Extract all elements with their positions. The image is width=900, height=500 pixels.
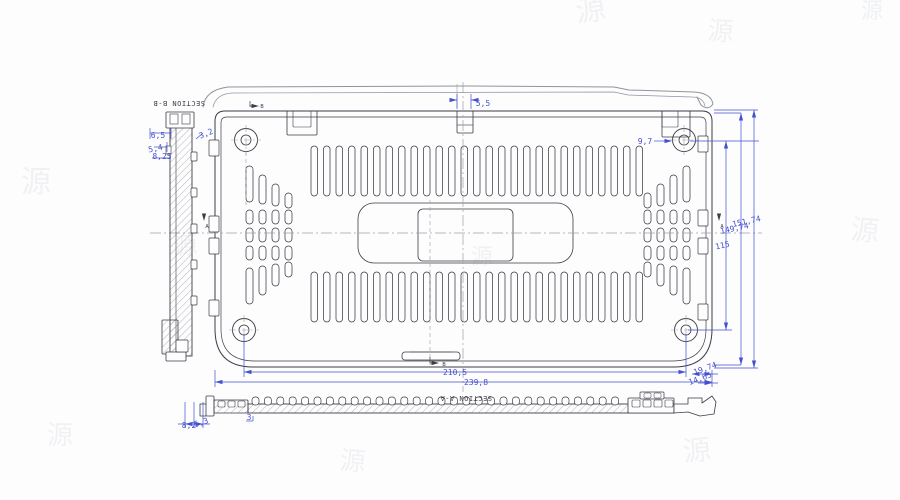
- section-label: SECTION B-B: [153, 99, 205, 107]
- dimension-label: 3,2: [198, 127, 215, 141]
- technical-drawing: 源源源源源源源源源源5,59,73,26,55,48,25151,74149,7…: [0, 0, 900, 500]
- watermark-glyph: 源: [573, 0, 608, 30]
- dimension-label: 115: [714, 240, 730, 252]
- dimension-label: 5,5: [476, 99, 491, 108]
- watermark-glyph: 源: [47, 421, 73, 451]
- dimension-layer: 5,59,73,26,55,48,25151,74149,74115210,52…: [147, 94, 761, 430]
- dimension-label: 239,8: [464, 378, 488, 387]
- watermark-glyph: 源: [849, 213, 880, 249]
- dimension-label: 149,74: [719, 221, 749, 236]
- watermark-glyph: 源: [21, 165, 51, 200]
- dimension-label: 9,7: [638, 137, 653, 146]
- top-profile-view: [203, 84, 713, 108]
- dimension-label: 8,25: [152, 152, 171, 161]
- dimension-label: 210,5: [443, 368, 467, 377]
- watermark-glyph: 源: [338, 446, 367, 478]
- cad-drawing-canvas: 源源源源源源源源源源5,59,73,26,55,48,25151,74149,7…: [0, 0, 900, 500]
- main-top-view: [150, 82, 762, 392]
- watermark-glyph: 源: [681, 433, 712, 469]
- watermark-glyph: 源: [707, 16, 735, 48]
- watermark-glyph: 源: [471, 245, 493, 270]
- watermark-glyph: 源: [861, 0, 883, 24]
- dimension-label: 5,3: [193, 416, 210, 429]
- dimension-label: 3: [247, 413, 252, 422]
- section-marker-letter: B: [260, 104, 264, 110]
- section-label: SECTION A-A: [440, 394, 492, 402]
- dimension-label: 6,5: [151, 131, 166, 140]
